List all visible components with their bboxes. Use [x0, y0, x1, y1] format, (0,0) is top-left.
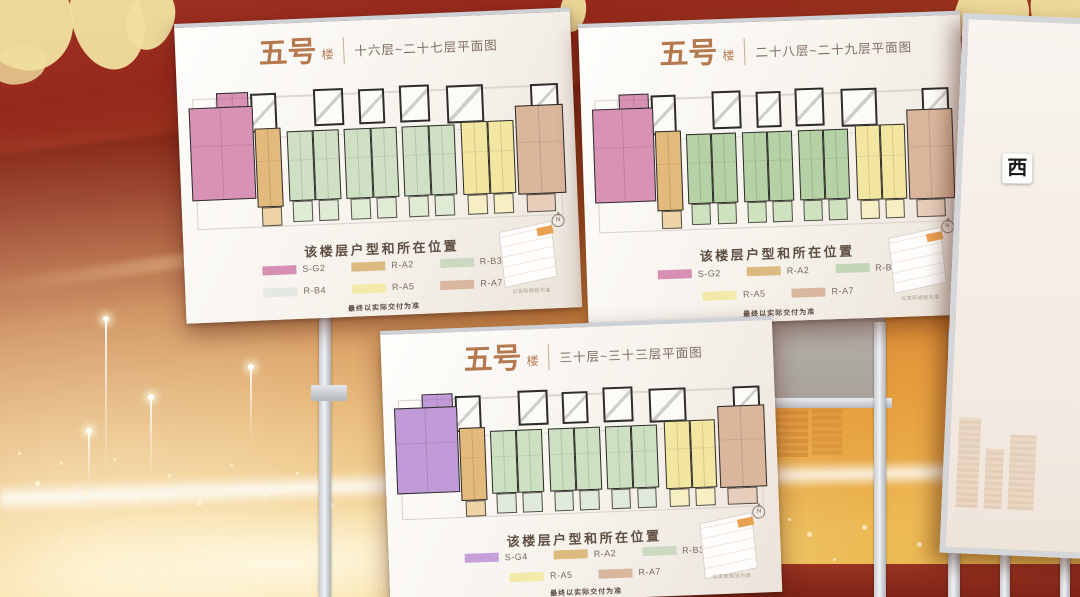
balcony-block [496, 493, 516, 513]
north-compass-icon: N [752, 506, 765, 519]
easel-bracket [311, 385, 347, 401]
unit-block [515, 103, 567, 194]
balcony-block [637, 488, 657, 508]
unit-block [344, 128, 373, 199]
legend-swatch [791, 287, 825, 297]
legend-swatch [658, 269, 692, 279]
core-block [517, 390, 548, 426]
floor-plan-drawing [591, 82, 956, 235]
core-block [358, 89, 386, 125]
title-divider [548, 343, 550, 370]
balcony-block [466, 500, 487, 517]
floor-index-board: 楼层 三十三层三十二层三十一层三十层二十九层二十八层二十七层二十六层二十五层二十… [939, 13, 1080, 561]
board-title: 五号 楼 十六层~二十七层平面图 [258, 29, 498, 67]
building-name: 五号 [659, 38, 718, 68]
core-block [602, 387, 633, 423]
core-block [755, 91, 781, 127]
balcony-block [409, 195, 430, 217]
unit-block [797, 129, 825, 200]
legend-item: R-A7 [598, 566, 661, 578]
unit-block [711, 132, 739, 203]
legend-item: R-A2 [554, 548, 617, 560]
floorplan-board-28-29: 五号 楼 二十八层~二十九层平面图 该楼层户型和所在位置 S-G2R-A2R-B… [578, 11, 970, 328]
balcony-block [526, 193, 557, 212]
core-block [840, 88, 877, 127]
legend-item: R-A2 [351, 259, 414, 272]
north-compass-icon: N [551, 214, 565, 228]
legend-label: R-B4 [303, 285, 326, 296]
north-label: N [556, 217, 561, 223]
legend-item: R-A5 [510, 570, 573, 582]
core-block [651, 95, 678, 135]
site-keyplan: N 以实际规划为准 [694, 511, 769, 582]
legend-label: R-A5 [392, 282, 415, 293]
unit-block [255, 128, 284, 208]
street-light-pole [88, 432, 90, 487]
legend-label: R-A7 [831, 286, 854, 297]
building-suffix: 楼 [526, 352, 539, 371]
street-light-pole [250, 368, 252, 443]
floor-range-subtitle: 二十八层~二十九层平面图 [755, 36, 913, 64]
floorplan-board-30-33: 五号 楼 三十层~三十三层平面图 该楼层户型和所在位置 S-G4R-A2R-B3… [380, 316, 782, 597]
unit-block [459, 427, 488, 501]
core-block [795, 87, 825, 126]
sparkles [18, 452, 21, 455]
unit-block [592, 107, 657, 204]
board-title: 五号 楼 二十八层~二十九层平面图 [659, 31, 913, 68]
title-divider [343, 37, 345, 64]
legend-item: S-G4 [465, 551, 528, 563]
floor-plan-drawing [188, 78, 567, 233]
legend-swatch [642, 546, 676, 556]
legend-label: S-G2 [302, 263, 325, 274]
easel-leg [874, 322, 886, 597]
legend-swatch [835, 263, 869, 273]
board-title: 五号 楼 三十层~三十三层平面图 [463, 336, 703, 373]
legend-label: S-G4 [505, 551, 528, 562]
floor-range-subtitle: 十六层~二十七层平面图 [354, 34, 498, 63]
north-label: N [945, 223, 950, 229]
unit-block [741, 131, 769, 202]
legend-swatch [351, 261, 385, 271]
balcony-block [748, 202, 768, 224]
legend-item: R-A2 [747, 265, 810, 277]
building-suffix: 楼 [321, 45, 334, 64]
unit-block [574, 426, 602, 491]
legend-item: R-A7 [791, 286, 854, 298]
west-direction-sign: 西 [1002, 153, 1032, 183]
unit-block [823, 128, 851, 199]
core-block [712, 90, 742, 129]
sparkles [788, 518, 791, 521]
balcony-block [727, 487, 757, 505]
legend-label: R-A2 [593, 548, 616, 559]
building-name: 五号 [463, 343, 522, 373]
legend-swatch [262, 265, 296, 275]
core-block [649, 387, 687, 423]
unit-block [286, 131, 315, 202]
unit-block [689, 419, 717, 488]
balcony-block [435, 194, 456, 216]
legend-swatch [598, 568, 632, 578]
legend-swatch [352, 283, 386, 293]
unit-block [686, 133, 714, 204]
balcony-block [611, 489, 631, 509]
unit-block [487, 119, 516, 194]
building-suffix: 楼 [722, 47, 735, 66]
legend-label: R-A5 [550, 570, 573, 581]
core-block [562, 391, 589, 424]
core-block [446, 84, 485, 123]
legend-label: R-A2 [391, 259, 414, 270]
unit-block [854, 125, 882, 201]
legend-swatch [263, 287, 297, 297]
legend-swatch [703, 290, 737, 300]
legend-label: S-G2 [698, 268, 721, 279]
balcony-block [522, 492, 542, 512]
unit-block [428, 125, 457, 196]
legend-label: R-A5 [743, 289, 766, 300]
legend-item: R-B4 [263, 285, 326, 298]
balcony-block [662, 210, 682, 229]
balcony-block [886, 198, 906, 218]
legend-item: S-G2 [658, 268, 721, 280]
legend-item: R-B3 [440, 256, 503, 269]
balcony-block [803, 200, 823, 222]
legend-swatch [554, 549, 588, 559]
balcony-block [717, 203, 737, 225]
legend-item: R-A7 [440, 278, 503, 291]
panel-city-watermark [955, 412, 1049, 511]
street-light-pole [150, 398, 152, 476]
balcony-block [829, 199, 849, 221]
legend-swatch [440, 257, 474, 267]
balcony-block [262, 207, 283, 226]
floor-plan-drawing [393, 382, 768, 524]
balcony-block [695, 487, 715, 506]
balcony-block [377, 197, 398, 219]
floorplan-board-16-27: 五号 楼 十六层~二十七层平面图 该楼层户型和所在位置 S-G2R-A2R-B3… [174, 7, 582, 323]
unit-block [189, 105, 256, 201]
showroom-photo: 五号 楼 十六层~二十七层平面图 该楼层户型和所在位置 S-G2R-A2R-B3… [0, 0, 1080, 597]
legend-label: R-A2 [787, 265, 810, 276]
north-compass-icon: N [941, 220, 954, 233]
core-block [399, 84, 430, 123]
legend-swatch [747, 266, 781, 276]
unit-block [516, 428, 544, 493]
north-label: N [757, 509, 762, 515]
unit-block [548, 427, 576, 492]
easel-back-panel [757, 316, 885, 402]
unit-block [906, 108, 955, 200]
legend-item: S-G2 [262, 263, 325, 276]
balcony-block [692, 204, 712, 226]
balcony-block [293, 200, 314, 222]
unit-block [394, 406, 460, 494]
unit-block [402, 126, 431, 197]
legend-label: R-A7 [638, 566, 661, 577]
unit-block [605, 425, 633, 490]
balcony-block [319, 199, 340, 221]
unit-block [461, 121, 490, 196]
legend-swatch [465, 553, 499, 563]
balcony-block [554, 491, 574, 511]
site-keyplan: N 以实际规划为准 [493, 219, 568, 296]
unit-block [717, 404, 767, 488]
building-name: 五号 [258, 37, 317, 67]
site-keyplan: N 以实际规划为准 [882, 225, 957, 302]
balcony-block [860, 199, 880, 219]
unit-block [663, 420, 691, 489]
unit-block [370, 127, 399, 198]
balcony-block [494, 193, 515, 213]
legend-swatch [510, 571, 544, 581]
easel-leg [319, 298, 331, 597]
floor-range-subtitle: 三十层~三十三层平面图 [559, 341, 703, 369]
balcony-block [468, 194, 489, 214]
unit-block [655, 130, 683, 211]
legend-item: R-A5 [352, 282, 415, 295]
balcony-block [773, 201, 793, 223]
balcony-block [917, 198, 946, 217]
unit-block [490, 429, 518, 494]
unit-block [312, 130, 341, 201]
unit-block [631, 424, 659, 489]
street-light-pole [105, 320, 107, 475]
title-divider [744, 38, 746, 65]
core-block [313, 88, 344, 127]
legend-swatch [440, 280, 474, 290]
legend-item: R-A5 [703, 289, 766, 301]
balcony-block [580, 490, 600, 510]
balcony-block [351, 198, 372, 220]
balcony-block [670, 488, 690, 507]
sparkles [60, 540, 63, 543]
unit-block [767, 130, 795, 201]
unit-block [879, 124, 907, 200]
